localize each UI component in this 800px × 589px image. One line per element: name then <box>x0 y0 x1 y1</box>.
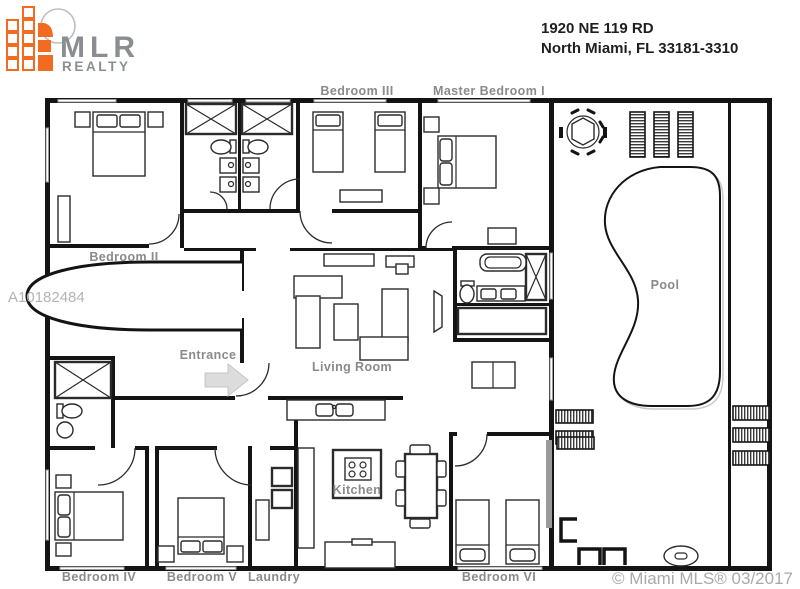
sink-icon <box>57 422 73 438</box>
label-bedroom5: Bedroom V <box>167 570 238 584</box>
closet-icon <box>242 104 292 134</box>
nightstand-icon <box>148 112 163 127</box>
counter-icon <box>458 308 546 334</box>
label-laundry: Laundry <box>248 570 300 584</box>
dryer-icon <box>272 490 292 508</box>
patio-slider-door <box>546 440 552 528</box>
toilet-icon <box>211 140 231 154</box>
label-kitchen: Kitchen <box>333 483 382 497</box>
dinette-table-icon <box>472 362 515 388</box>
floorplan-canvas: MLR REALTY 1920 NE 119 RD North Miami, F… <box>0 0 800 589</box>
lounge-chair-icon <box>557 437 594 449</box>
chair-icon <box>410 519 430 528</box>
chair-icon <box>396 490 405 506</box>
label-bedroom3: Bedroom III <box>320 84 393 98</box>
label-living: Living Room <box>312 360 392 374</box>
chair-icon <box>396 264 408 274</box>
address-line2: North Miami, FL 33181-3310 <box>541 40 738 57</box>
mls-listing-id-watermark: A10182484 <box>8 289 85 306</box>
toilet-icon <box>460 285 474 303</box>
logo-tagline-text: REALTY <box>62 59 131 74</box>
nightstand-icon <box>56 543 71 556</box>
shelf-icon <box>256 500 269 540</box>
patio-table-icon <box>559 110 607 154</box>
lounge-chair-icon <box>654 112 669 157</box>
dresser-icon <box>488 228 516 244</box>
lounge-chair-icon <box>630 112 645 157</box>
bedroom2-furniture <box>58 112 163 242</box>
sofa-icon <box>360 289 408 360</box>
label-bedroom4: Bedroom IV <box>62 570 136 584</box>
closet-icon <box>526 254 546 300</box>
sink-icon <box>316 404 333 416</box>
logo-squares-outline-icon <box>7 7 34 70</box>
address-line1: 1920 NE 119 RD <box>541 20 654 37</box>
closet-icon <box>186 104 236 134</box>
bedroom5-furniture <box>158 498 243 562</box>
chair-icon <box>410 445 430 454</box>
appliance-icon <box>352 539 372 545</box>
nightstand-icon <box>424 188 439 204</box>
lounge-chair-icon <box>733 451 770 465</box>
floorplan-page: MLR REALTY 1920 NE 119 RD North Miami, F… <box>0 0 800 589</box>
lounge-chair-icon <box>556 410 593 423</box>
console-table-icon <box>324 254 374 266</box>
washer-icon <box>272 468 292 486</box>
chair-icon <box>561 519 577 541</box>
kitchen-counter-icon <box>325 542 395 568</box>
lounge-chair-icon <box>678 112 693 157</box>
bedroom6-furniture <box>456 500 539 564</box>
bedroom3-furniture <box>313 112 405 202</box>
dresser-icon <box>58 196 70 242</box>
kitchen-counter-icon <box>298 448 314 548</box>
stove-icon <box>345 458 371 480</box>
label-bedroom2: Bedroom II <box>89 250 158 264</box>
room-labels: Bedroom III Master Bedroom I Bedroom II … <box>62 84 679 584</box>
patio-chairs <box>561 519 625 565</box>
pool-area <box>556 110 770 566</box>
dining-set <box>396 445 446 528</box>
chair-icon <box>396 461 405 477</box>
sink-icon <box>336 404 353 416</box>
hall-bathroom-lower <box>57 404 82 438</box>
nightstand-icon <box>424 117 439 132</box>
lounge-chair-icon <box>733 406 770 420</box>
nightstand-icon <box>75 112 90 127</box>
toilet-icon <box>62 404 82 418</box>
dining-table-icon <box>405 454 437 518</box>
toilet-icon <box>248 140 268 154</box>
chair-icon <box>437 461 446 477</box>
tv-icon <box>434 291 442 332</box>
master-bedroom-furniture <box>424 117 516 244</box>
bedroom4-furniture <box>55 475 123 556</box>
spa-icon <box>664 546 698 566</box>
label-entrance: Entrance <box>180 348 237 362</box>
mls-copyright-watermark: © Miami MLS® 03/2017 <box>612 569 793 588</box>
logo-squares-filled-icon <box>38 23 53 71</box>
laundry-appliances <box>256 468 292 540</box>
door-arcs <box>98 179 487 485</box>
lounge-chair-icon <box>733 428 770 442</box>
dresser-icon <box>340 190 382 202</box>
nightstand-icon <box>158 546 174 562</box>
nightstand-icon <box>227 546 243 562</box>
entrance-arrow-icon <box>205 364 248 396</box>
chair-icon <box>604 549 625 565</box>
mlr-realty-logo: MLR REALTY <box>7 7 140 74</box>
coffee-table-icon <box>334 304 358 340</box>
nightstand-icon <box>56 475 71 488</box>
label-bedroom6: Bedroom VI <box>462 570 536 584</box>
chair-icon <box>579 549 600 565</box>
label-master: Master Bedroom I <box>433 84 545 98</box>
chair-icon <box>437 490 446 506</box>
label-pool: Pool <box>651 278 680 292</box>
closet-icon <box>55 362 111 398</box>
property-address: 1920 NE 119 RD North Miami, FL 33181-331… <box>541 20 738 57</box>
